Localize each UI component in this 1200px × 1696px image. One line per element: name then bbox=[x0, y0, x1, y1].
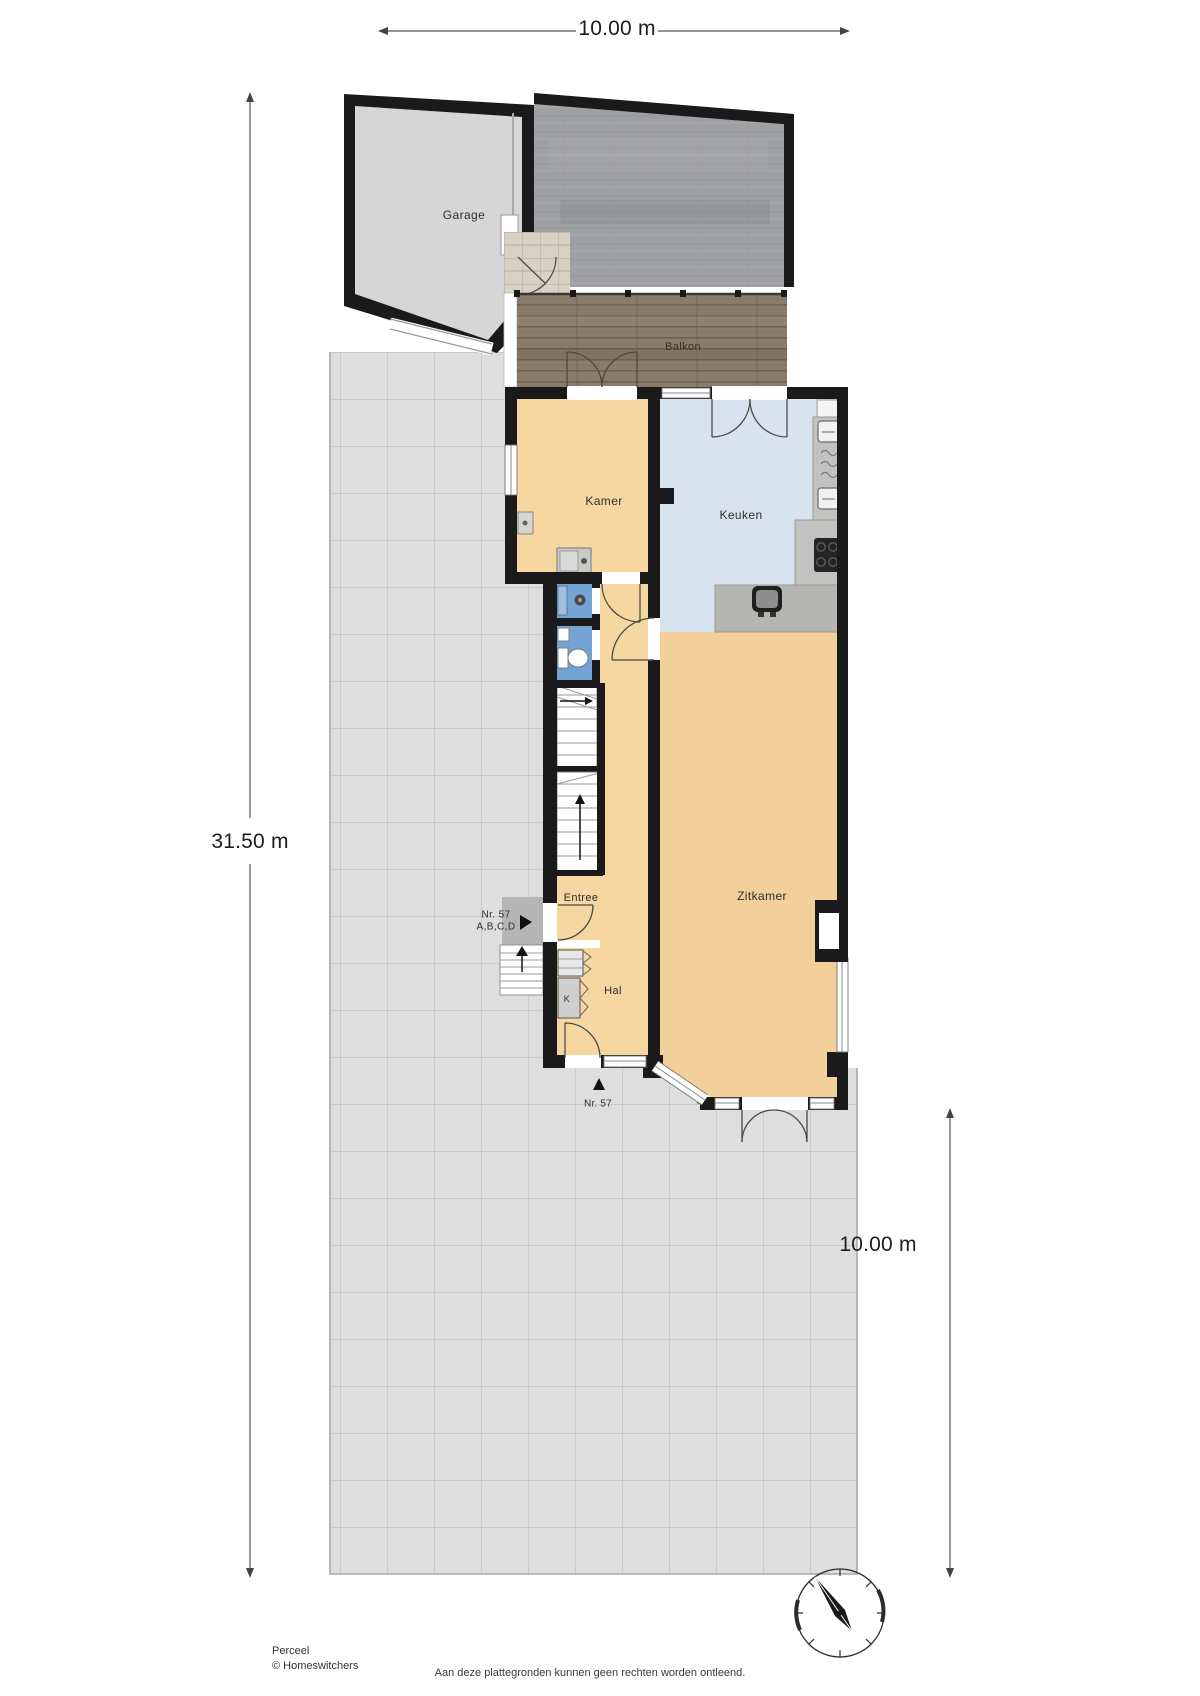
roof-terrace bbox=[534, 93, 794, 287]
dimension-top-label: 10.00 m bbox=[578, 17, 655, 41]
kamer-label: Kamer bbox=[585, 494, 622, 508]
keuken-label: Keuken bbox=[719, 508, 762, 522]
house-number-label: Nr. 57 A,B,C,D bbox=[477, 910, 516, 933]
garage-label: Garage bbox=[443, 208, 485, 222]
floorplan-page: Garage Balkon Kamer Keuken Zitkamer Entr… bbox=[0, 0, 1200, 1696]
wc-room bbox=[557, 626, 592, 680]
washbasin-cabinet bbox=[557, 548, 591, 574]
balkon-label: Balkon bbox=[665, 341, 701, 353]
dimension-left-label: 31.50 m bbox=[211, 830, 288, 854]
closet-k-label: K bbox=[564, 994, 570, 1004]
plan-credits: Perceel © Homeswitchers bbox=[272, 1644, 358, 1674]
hal-label: Hal bbox=[604, 985, 622, 997]
compass-icon bbox=[796, 1569, 884, 1657]
disclaimer-text: Aan deze plattegronden kunnen geen recht… bbox=[435, 1667, 746, 1679]
shower-room bbox=[557, 584, 592, 618]
exterior-stairs bbox=[500, 945, 543, 995]
cooktop-icon bbox=[814, 538, 840, 572]
copyright-text: © Homeswitchers bbox=[272, 1659, 358, 1674]
fireplace bbox=[815, 900, 848, 962]
floorplan-drawing bbox=[0, 0, 1200, 1696]
zitkamer-floor bbox=[660, 632, 837, 1097]
entree-label: Entree bbox=[564, 892, 599, 904]
front-door-number-label: Nr. 57 bbox=[584, 1099, 612, 1110]
staircase-lower bbox=[557, 772, 603, 872]
balcony-deck bbox=[504, 290, 787, 387]
toilet-icon bbox=[558, 648, 588, 668]
dimension-right-label: 10.00 m bbox=[839, 1233, 916, 1257]
plan-title: Perceel bbox=[272, 1644, 358, 1659]
kamer-floor bbox=[517, 399, 648, 572]
zitkamer-label: Zitkamer bbox=[737, 889, 787, 903]
staircase-upper bbox=[557, 683, 597, 768]
